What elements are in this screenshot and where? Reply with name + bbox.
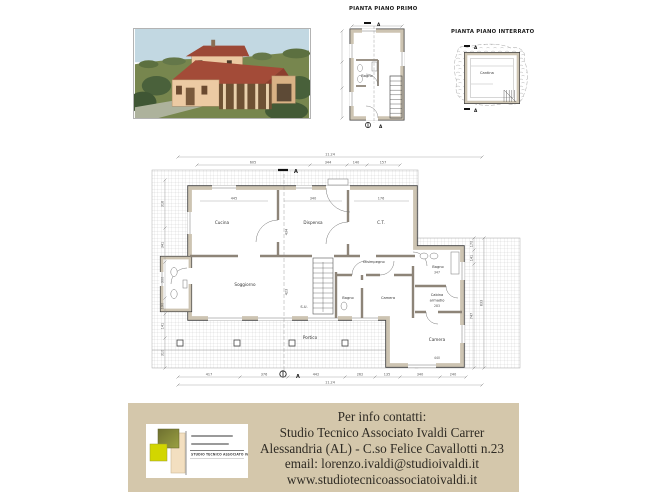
window: [201, 86, 207, 95]
dim-left: 341: [161, 242, 165, 248]
room-label-bagno-right: Bagno: [432, 265, 443, 269]
room-label-cabina: armadio: [430, 299, 445, 303]
studio-logo-image: STUDIO TECNICO ASSOCIATO IVALDI: [146, 424, 248, 478]
room-label-ct: C.T.: [377, 220, 385, 225]
dim-room: 440: [434, 356, 440, 360]
dim-right: 141: [470, 255, 474, 261]
dim-right: 833: [480, 300, 484, 306]
contact-address: Alessandria (AL) - C.so Felice Cavallott…: [250, 441, 514, 457]
first-floor-plan-title: PIANTA PIANO PRIMO: [349, 6, 417, 12]
room-label-cabina: Cabina: [431, 293, 443, 297]
room-label-dispensa: Dispensa: [303, 220, 323, 225]
dim-left: 310: [161, 350, 165, 356]
contact-box: STUDIO TECNICO ASSOCIATO IVALDI Per info…: [128, 403, 519, 492]
dim-inner: 445: [231, 197, 237, 201]
section-marker-a: A: [474, 108, 478, 113]
contact-website: www.studiotecnicoassociatoivaldi.it: [250, 472, 514, 488]
dim-left: 141: [161, 323, 165, 329]
logo-shape: [150, 444, 167, 461]
dim-top: 605: [250, 161, 256, 165]
room-label-soggiorno: Soggiorno: [234, 282, 256, 287]
dim-total-bottom: 11.24: [325, 381, 335, 385]
garage-door: [277, 84, 292, 102]
dim-right: 747: [470, 313, 474, 319]
dim-bottom: 442: [313, 373, 319, 377]
dim-right: 170: [470, 241, 474, 247]
dim-left: 190: [161, 303, 165, 309]
room-label-cucina: Cucina: [215, 220, 230, 225]
room-label-disimpegno: Disimpegno: [363, 260, 384, 264]
basement-plan: Cantina A A: [448, 34, 540, 120]
dim-bottom: 340: [417, 373, 423, 377]
contact-email: email: lorenzo.ivaldi@studioivaldi.it: [250, 456, 514, 472]
first-floor-plan: Bagno A A: [332, 14, 442, 144]
dim-inner: 340: [310, 197, 316, 201]
room-label-cantina: Cantina: [480, 71, 494, 75]
dim-left: 318: [161, 201, 165, 207]
flyer-page: PIANTA PIANO PRIMO PIANTA PIANO INTERRAT…: [0, 0, 648, 492]
room-label-portico: Portico: [303, 335, 318, 340]
dim-left: 300: [161, 277, 165, 283]
front-door: [186, 88, 195, 106]
dim-total-top: 11.24: [325, 153, 335, 157]
dim-bottom: 240: [450, 373, 456, 377]
studio-logo: STUDIO TECNICO ASSOCIATO IVALDI: [146, 424, 248, 478]
dim-bottom: 376: [261, 373, 267, 377]
house-3d-render: [133, 28, 311, 119]
house-3d-render-image: [134, 29, 310, 118]
dim-top: 157: [380, 161, 386, 165]
section-marker-a: A: [377, 22, 381, 27]
room-label-camera-bottom: Camera: [429, 337, 446, 342]
logo-text-line: [191, 443, 229, 445]
section-marker-a: A: [379, 124, 383, 129]
dim-room: 283: [434, 304, 440, 308]
room-label-bagno-center: Bagno: [342, 296, 353, 300]
chimney: [211, 40, 215, 47]
dim-inner-v: 434: [285, 229, 289, 235]
section-marker-a: A: [294, 169, 298, 175]
dim-bottom: 135: [384, 373, 390, 377]
dim-top: 140: [353, 161, 359, 165]
contact-heading: Per info contatti:: [250, 409, 514, 425]
room-label-stairs: S.U.: [300, 305, 307, 309]
dim-bottom: 262: [357, 373, 363, 377]
dim-top: 344: [325, 161, 331, 165]
contact-info: Per info contatti: Studio Tecnico Associ…: [250, 409, 514, 488]
ground-floor-plan: A A Cucina Dispensa C.T. Soggiorno Disim…: [150, 150, 522, 394]
window: [176, 86, 182, 95]
dim-inner-v: 423: [285, 289, 289, 295]
dim-room: 347: [434, 271, 440, 275]
contact-studio-name: Studio Tecnico Associato Ivaldi Carrer: [250, 425, 514, 441]
room-label-bagno-first: Bagno: [361, 74, 372, 78]
logo-studio-name: STUDIO TECNICO ASSOCIATO IVALDI: [191, 453, 248, 457]
logo-text-line: [191, 435, 233, 437]
dim-bottom: 417: [206, 373, 212, 377]
dim-inner: 176: [378, 197, 384, 201]
room-label-camera-center: Camera: [381, 296, 395, 300]
